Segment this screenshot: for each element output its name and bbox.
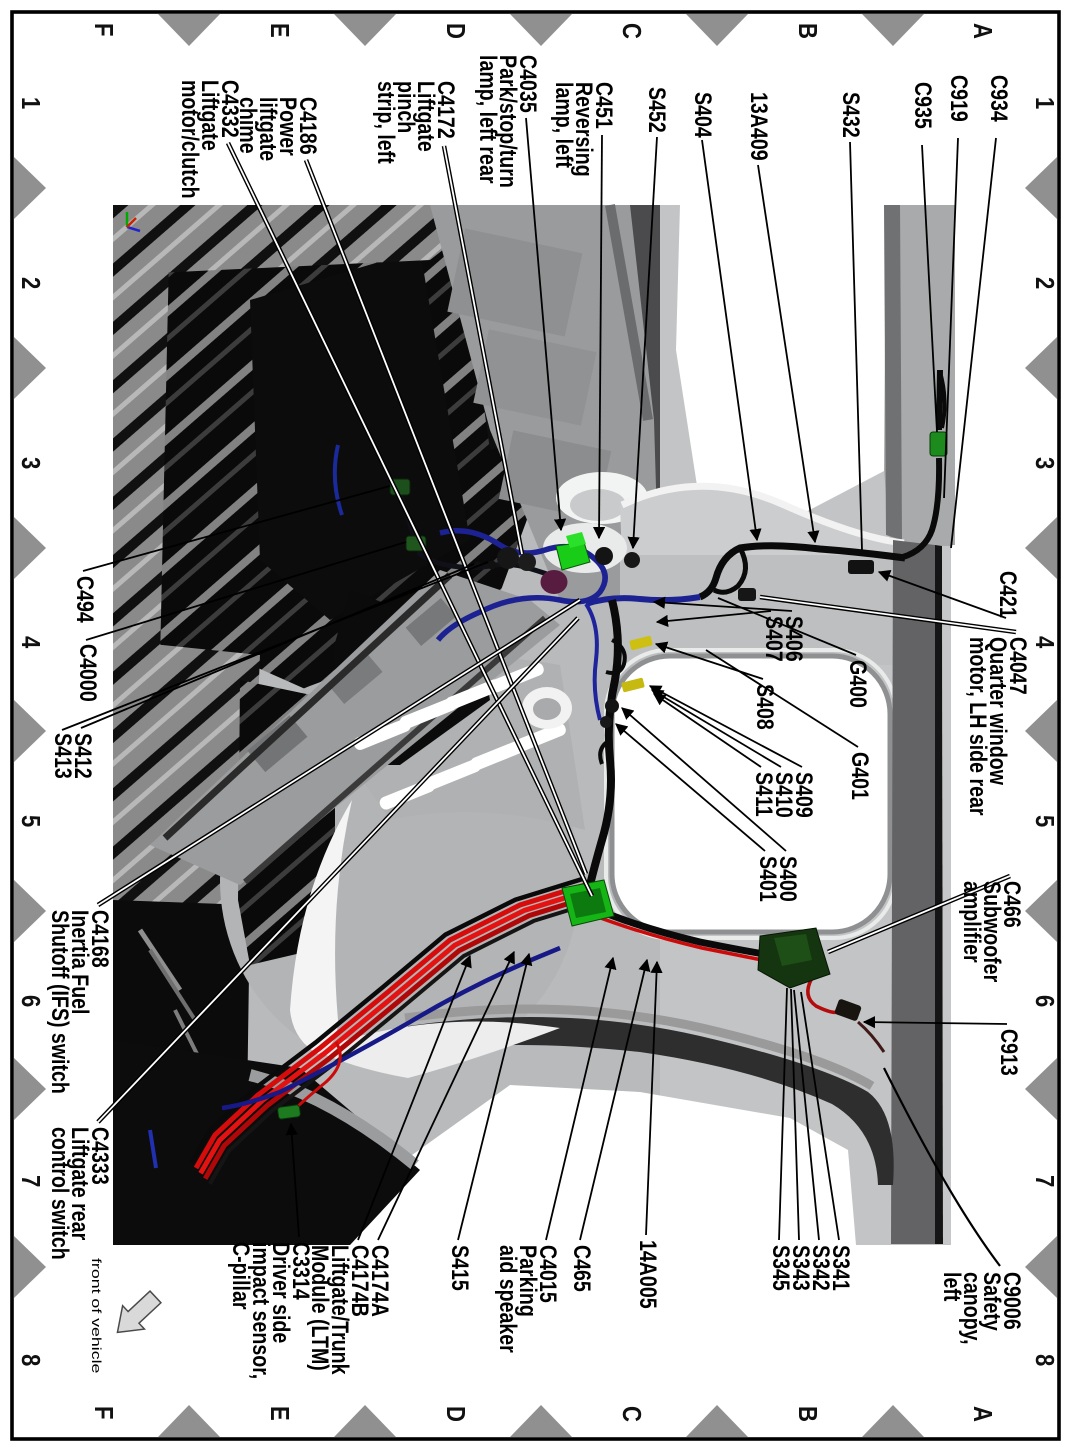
svg-text:A: A — [968, 23, 997, 39]
svg-text:4: 4 — [16, 636, 45, 649]
svg-text:6: 6 — [16, 995, 45, 1007]
svg-text:D: D — [441, 1406, 470, 1422]
svg-text:E: E — [265, 23, 294, 38]
svg-text:S341 S342 S343 S345: S341 S342 S343 S345 — [767, 1245, 855, 1296]
svg-text:C465: C465 — [568, 1245, 596, 1292]
svg-text:front of vehicle: front of vehicle — [89, 1258, 103, 1373]
svg-text:C421: C421 — [994, 571, 1022, 618]
svg-text:2: 2 — [16, 277, 45, 289]
svg-text:6: 6 — [1030, 995, 1059, 1007]
svg-text:4: 4 — [1030, 636, 1059, 649]
svg-text:S400 S401: S400 S401 — [754, 856, 802, 907]
svg-text:C494: C494 — [71, 576, 99, 623]
svg-text:A: A — [968, 1406, 997, 1422]
svg-text:F: F — [89, 1406, 118, 1419]
svg-text:G400: G400 — [844, 660, 872, 708]
svg-text:C: C — [617, 1406, 646, 1422]
svg-text:3: 3 — [1030, 457, 1059, 469]
svg-text:B: B — [793, 23, 822, 39]
svg-text:S452: S452 — [643, 87, 671, 133]
svg-text:E: E — [265, 1406, 294, 1421]
svg-text:C913: C913 — [995, 1029, 1023, 1076]
svg-text:8: 8 — [1030, 1354, 1059, 1366]
svg-text:S415: S415 — [446, 1245, 474, 1291]
svg-text:2: 2 — [1030, 277, 1059, 289]
svg-text:F: F — [89, 23, 118, 36]
svg-text:5: 5 — [16, 815, 45, 827]
svg-text:5: 5 — [1030, 815, 1059, 827]
svg-text:S412 S413: S412 S413 — [49, 733, 97, 784]
svg-text:S409 S410 S411: S409 S410 S411 — [750, 772, 818, 823]
svg-text:C934: C934 — [985, 75, 1013, 122]
svg-text:D: D — [441, 23, 470, 39]
svg-text:14A005: 14A005 — [634, 1240, 662, 1309]
svg-text:C: C — [617, 23, 646, 39]
svg-text:C919: C919 — [945, 75, 973, 122]
svg-text:1: 1 — [1030, 97, 1059, 109]
svg-text:1: 1 — [16, 97, 45, 109]
svg-text:S432: S432 — [837, 92, 865, 138]
svg-text:S408: S408 — [751, 684, 779, 730]
svg-text:8: 8 — [16, 1354, 45, 1366]
svg-text:C4000: C4000 — [74, 644, 102, 702]
svg-text:B: B — [793, 1406, 822, 1422]
svg-text:C935: C935 — [909, 82, 937, 129]
svg-text:7: 7 — [16, 1175, 45, 1187]
svg-text:S404: S404 — [689, 92, 717, 138]
svg-text:7: 7 — [1030, 1175, 1059, 1187]
svg-text:13A409: 13A409 — [745, 92, 773, 161]
svg-text:3: 3 — [16, 457, 45, 469]
svg-text:G401: G401 — [846, 752, 874, 800]
svg-text:S406 S407: S406 S407 — [760, 616, 808, 667]
